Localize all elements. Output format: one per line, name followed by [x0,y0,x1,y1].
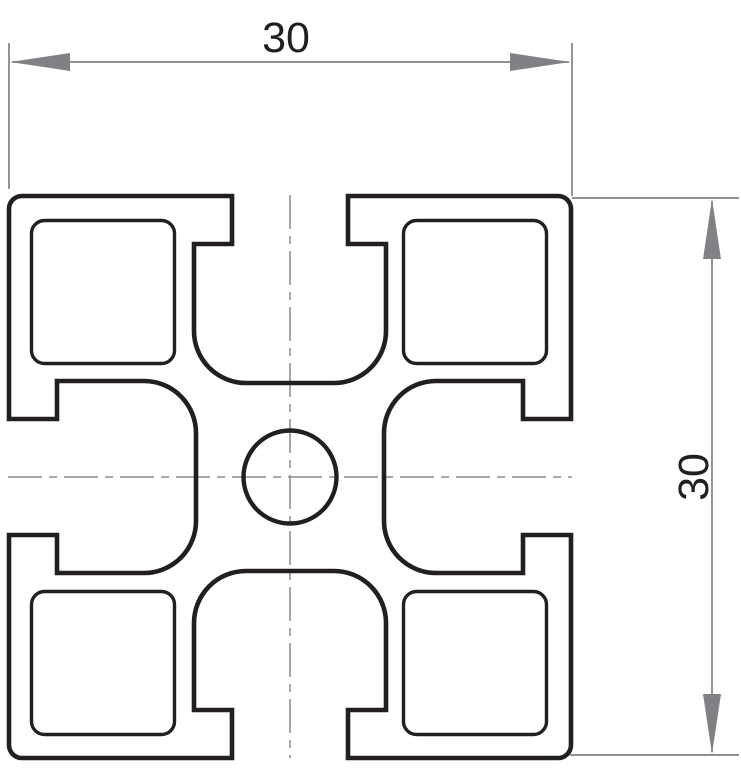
center-lines [8,195,572,758]
corner-cavity-bottom-left [32,592,175,735]
corner-cavity-bottom-right [404,592,547,735]
arrowhead-up-icon [703,199,721,259]
corner-cavity-top-right [404,221,547,364]
arrowhead-down-icon [703,694,721,754]
dimension-height-label: 30 [670,453,718,501]
profile-cross-section-drawing: 30 30 [0,0,741,768]
dimension-width-label: 30 [262,14,310,62]
dimension-vertical: 30 [570,198,739,755]
arrowhead-left-icon [10,53,70,71]
technical-drawing-page: 30 30 [0,0,741,768]
dimension-horizontal: 30 [9,14,572,196]
arrowhead-right-icon [510,53,570,71]
corner-cavity-top-left [32,221,175,364]
